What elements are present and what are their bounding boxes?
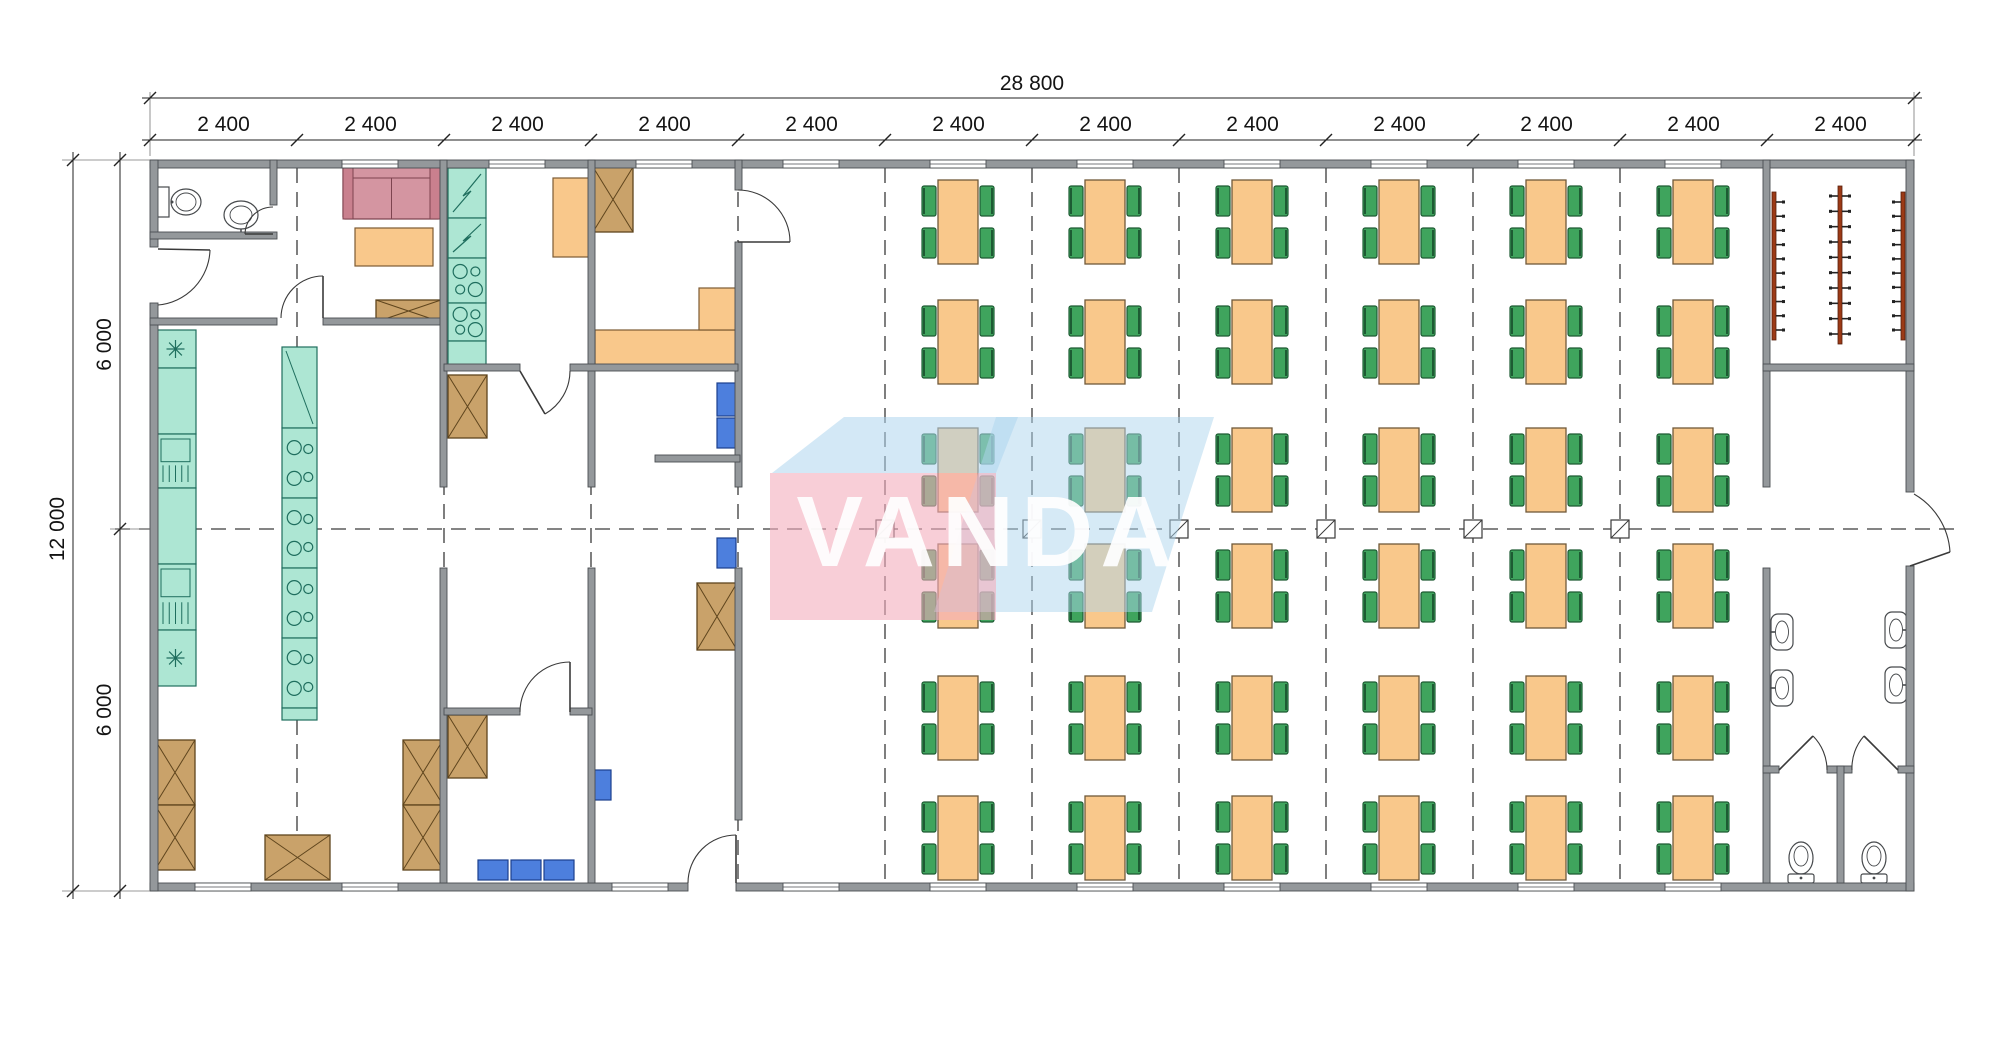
storage-crate xyxy=(155,740,195,805)
storage-crate xyxy=(448,375,487,438)
door xyxy=(520,371,570,414)
wall xyxy=(736,883,1914,891)
dining-table xyxy=(1673,796,1713,880)
chair-green xyxy=(1216,348,1230,378)
watermark-shape xyxy=(772,417,1018,473)
window xyxy=(1665,883,1721,891)
chair-green xyxy=(980,306,994,336)
dining-set xyxy=(1216,428,1288,512)
chair-green xyxy=(1568,434,1582,464)
toilet xyxy=(1861,842,1887,883)
dining-set xyxy=(1510,180,1582,264)
door xyxy=(1910,494,1950,566)
chair-green xyxy=(1657,186,1671,216)
chair-green xyxy=(1363,348,1377,378)
dimension-label: 6 000 xyxy=(93,318,116,371)
chair-green xyxy=(1657,228,1671,258)
dining-set xyxy=(1510,796,1582,880)
chair-green xyxy=(1069,724,1083,754)
dining-table xyxy=(1232,300,1272,384)
dining-set xyxy=(1069,676,1141,760)
toilet xyxy=(1788,842,1814,883)
chair-green xyxy=(1216,228,1230,258)
chair-green xyxy=(1216,682,1230,712)
chair-green xyxy=(1715,306,1729,336)
dining-set xyxy=(1069,180,1141,264)
floor-plan-page: 2 4002 4002 4002 4002 4002 4002 4002 400… xyxy=(0,0,2000,1041)
chair-green xyxy=(980,348,994,378)
chair-green xyxy=(1127,186,1141,216)
chair-green xyxy=(1510,186,1524,216)
dining-set xyxy=(1069,300,1141,384)
worktop-table xyxy=(553,178,592,257)
dimension-label: 2 400 xyxy=(1520,113,1573,136)
window xyxy=(1224,160,1280,168)
window xyxy=(1371,160,1427,168)
chair-green xyxy=(1568,802,1582,832)
dining-table xyxy=(1085,676,1125,760)
chair-green xyxy=(1421,476,1435,506)
dining-set xyxy=(1510,428,1582,512)
chair-green xyxy=(1216,592,1230,622)
chair-green xyxy=(1216,434,1230,464)
chair-green xyxy=(1216,844,1230,874)
chair-green xyxy=(1363,724,1377,754)
dimension-side-total: 12 000 xyxy=(46,497,69,561)
kitchen-counter xyxy=(448,168,486,368)
coat-rack xyxy=(1892,192,1905,340)
wall xyxy=(1763,568,1770,883)
dining-set xyxy=(1216,300,1288,384)
chair-green xyxy=(1274,682,1288,712)
chair-green xyxy=(1421,592,1435,622)
chair-green xyxy=(1568,724,1582,754)
dining-set xyxy=(1363,180,1435,264)
chair-green xyxy=(1363,186,1377,216)
door xyxy=(520,662,570,712)
chair-green xyxy=(1568,228,1582,258)
dining-set xyxy=(1657,676,1729,760)
dining-set xyxy=(1510,676,1582,760)
chair-green xyxy=(1363,682,1377,712)
sink-icon xyxy=(167,649,185,667)
dining-set xyxy=(1363,796,1435,880)
dimension-label: 6 000 xyxy=(93,684,116,737)
dining-table xyxy=(938,300,978,384)
chair-green xyxy=(1274,306,1288,336)
chair-green xyxy=(1715,682,1729,712)
storage-crate xyxy=(448,715,487,778)
chair-green xyxy=(1274,186,1288,216)
chair-green xyxy=(1715,434,1729,464)
chair-green xyxy=(1715,844,1729,874)
storage-crate xyxy=(265,835,330,880)
window xyxy=(1518,883,1574,891)
dimension-label: 2 400 xyxy=(344,113,397,136)
dining-table xyxy=(1526,676,1566,760)
dining-set xyxy=(1657,544,1729,628)
watermark: VANDA xyxy=(770,417,1214,620)
dining-table xyxy=(1085,180,1125,264)
chair-green xyxy=(1715,348,1729,378)
chair-green xyxy=(1069,186,1083,216)
chair-blue xyxy=(478,860,508,880)
dining-table xyxy=(1379,676,1419,760)
dining-table xyxy=(1085,796,1125,880)
dining-table xyxy=(1232,544,1272,628)
kitchen-counter xyxy=(282,347,317,720)
wall xyxy=(1898,766,1914,773)
chair-green xyxy=(1274,844,1288,874)
chair-green xyxy=(1657,476,1671,506)
dining-table xyxy=(1379,544,1419,628)
chair-green xyxy=(1568,476,1582,506)
dining-table xyxy=(938,796,978,880)
chair-green xyxy=(1510,348,1524,378)
chair-green xyxy=(922,724,936,754)
chair-green xyxy=(980,724,994,754)
wall xyxy=(150,303,158,891)
window xyxy=(636,160,692,168)
chair-blue xyxy=(511,860,541,880)
chair-green xyxy=(1274,228,1288,258)
chair-green xyxy=(1216,802,1230,832)
dining-set xyxy=(1363,544,1435,628)
door xyxy=(688,835,736,883)
window xyxy=(1077,160,1133,168)
chair-green xyxy=(1715,550,1729,580)
dining-set xyxy=(1216,796,1288,880)
chair-green xyxy=(1715,186,1729,216)
wash-basin xyxy=(1767,670,1793,706)
chair-green xyxy=(1363,476,1377,506)
storage-crate xyxy=(593,167,633,232)
chair-green xyxy=(1715,476,1729,506)
chair-green xyxy=(1274,476,1288,506)
chair-green xyxy=(1069,802,1083,832)
chair-green xyxy=(922,228,936,258)
window xyxy=(1371,883,1427,891)
dining-table xyxy=(1673,428,1713,512)
dining-set xyxy=(1510,300,1582,384)
chair-green xyxy=(1510,844,1524,874)
window xyxy=(195,883,251,891)
door xyxy=(738,190,790,242)
watermark-text: VANDA xyxy=(796,476,1179,588)
window xyxy=(783,883,839,891)
dining-table xyxy=(1526,300,1566,384)
chair-green xyxy=(1568,682,1582,712)
dining-table xyxy=(1673,676,1713,760)
window xyxy=(1077,883,1133,891)
dining-table xyxy=(938,676,978,760)
dining-table xyxy=(1526,544,1566,628)
wall xyxy=(1763,766,1779,773)
chair-green xyxy=(922,306,936,336)
door xyxy=(1779,736,1827,770)
chair-green xyxy=(1568,550,1582,580)
dimension-top-total: 28 800 xyxy=(1000,72,1064,95)
coat-rack xyxy=(1772,192,1785,340)
chair-green xyxy=(1421,682,1435,712)
chair-green xyxy=(980,802,994,832)
dining-table xyxy=(1673,300,1713,384)
toilet xyxy=(157,187,201,217)
chair-green xyxy=(1069,682,1083,712)
dining-set xyxy=(1216,180,1288,264)
chair-green xyxy=(1069,228,1083,258)
chair-green xyxy=(1421,802,1435,832)
chair-green xyxy=(1510,434,1524,464)
worktop-table xyxy=(355,228,433,266)
floor-plan: 2 4002 4002 4002 4002 4002 4002 4002 400… xyxy=(0,0,2000,1041)
chair-green xyxy=(1510,682,1524,712)
chair-green xyxy=(1421,550,1435,580)
chair-green xyxy=(1421,228,1435,258)
dining-table xyxy=(1379,796,1419,880)
chair-blue xyxy=(593,770,611,800)
chair-green xyxy=(980,682,994,712)
dimension-label: 2 400 xyxy=(638,113,691,136)
dining-table xyxy=(1673,544,1713,628)
chair-blue xyxy=(544,860,574,880)
dining-table xyxy=(1526,428,1566,512)
chair-green xyxy=(1363,228,1377,258)
chair-green xyxy=(1657,724,1671,754)
wall xyxy=(1763,364,1914,371)
chair-green xyxy=(1657,682,1671,712)
dining-set xyxy=(1216,676,1288,760)
storage-crate xyxy=(403,805,443,870)
dining-table xyxy=(1379,428,1419,512)
window xyxy=(342,160,398,168)
door xyxy=(1852,736,1898,770)
dining-table xyxy=(938,180,978,264)
wall xyxy=(444,364,520,371)
wall xyxy=(1763,160,1770,487)
chair-green xyxy=(980,186,994,216)
column-marker xyxy=(1317,520,1335,538)
wall xyxy=(1906,566,1914,891)
dimension-label: 2 400 xyxy=(932,113,985,136)
storage-crate xyxy=(403,740,443,805)
dining-set xyxy=(1363,428,1435,512)
storage-crate xyxy=(697,583,737,650)
chair-green xyxy=(1216,186,1230,216)
wash-basin xyxy=(224,201,258,234)
chair-green xyxy=(1363,844,1377,874)
chair-blue xyxy=(717,538,736,568)
door xyxy=(158,249,210,305)
chair-green xyxy=(922,682,936,712)
chair-green xyxy=(1510,592,1524,622)
dimension-label: 2 400 xyxy=(1667,113,1720,136)
chair-green xyxy=(1127,682,1141,712)
window xyxy=(783,160,839,168)
dining-set xyxy=(1363,676,1435,760)
dining-set xyxy=(1657,796,1729,880)
chair-green xyxy=(1510,476,1524,506)
column-marker xyxy=(1464,520,1482,538)
dining-table xyxy=(1526,796,1566,880)
chair-green xyxy=(1216,306,1230,336)
column-marker xyxy=(1611,520,1629,538)
wall xyxy=(1906,160,1914,492)
wall xyxy=(570,708,592,715)
chair-green xyxy=(1421,724,1435,754)
dining-table xyxy=(1232,676,1272,760)
dining-set xyxy=(1069,796,1141,880)
dining-table xyxy=(1232,180,1272,264)
chair-green xyxy=(1421,306,1435,336)
chair-green xyxy=(1069,844,1083,874)
chair-green xyxy=(1715,228,1729,258)
dining-set xyxy=(922,180,994,264)
storage-crate xyxy=(155,805,195,870)
wall xyxy=(570,364,738,371)
chair-green xyxy=(1657,306,1671,336)
chair-green xyxy=(1069,348,1083,378)
chair-green xyxy=(1127,724,1141,754)
chair-green xyxy=(1421,844,1435,874)
chair-green xyxy=(922,348,936,378)
chair-green xyxy=(1657,802,1671,832)
chair-green xyxy=(1657,592,1671,622)
coat-rack xyxy=(1829,186,1851,344)
chair-green xyxy=(1363,802,1377,832)
chair-green xyxy=(1715,802,1729,832)
chair-green xyxy=(922,802,936,832)
dining-table xyxy=(1526,180,1566,264)
chair-green xyxy=(1274,592,1288,622)
dimension-label: 2 400 xyxy=(1226,113,1279,136)
chair-green xyxy=(922,186,936,216)
chair-green xyxy=(1421,348,1435,378)
chair-green xyxy=(1363,306,1377,336)
window xyxy=(342,883,398,891)
wall xyxy=(150,318,277,325)
chair-green xyxy=(1715,592,1729,622)
chair-green xyxy=(1510,550,1524,580)
dimension-label: 2 400 xyxy=(1079,113,1132,136)
chair-green xyxy=(1363,550,1377,580)
sink-icon xyxy=(167,340,185,358)
chair-green xyxy=(1510,228,1524,258)
wall xyxy=(440,160,447,487)
chair-green xyxy=(1274,724,1288,754)
chair-green xyxy=(1274,434,1288,464)
window xyxy=(489,160,545,168)
dimension-label: 2 400 xyxy=(1373,113,1426,136)
sofa xyxy=(343,166,440,219)
chair-green xyxy=(1715,724,1729,754)
chair-green xyxy=(1657,844,1671,874)
chair-green xyxy=(1127,802,1141,832)
wall xyxy=(588,160,595,487)
dining-table xyxy=(1232,796,1272,880)
dining-set xyxy=(1216,544,1288,628)
dimension-label: 2 400 xyxy=(197,113,250,136)
dimension-label: 2 400 xyxy=(1814,113,1867,136)
chair-green xyxy=(1216,550,1230,580)
dining-set xyxy=(1657,428,1729,512)
chair-green xyxy=(1510,724,1524,754)
window xyxy=(930,160,986,168)
chair-blue xyxy=(717,383,736,416)
chair-green xyxy=(1657,348,1671,378)
chair-green xyxy=(1657,434,1671,464)
worktop-table xyxy=(699,288,737,330)
chair-green xyxy=(1274,348,1288,378)
dining-set xyxy=(1657,300,1729,384)
wall xyxy=(655,455,740,462)
dining-set xyxy=(922,676,994,760)
chair-green xyxy=(1510,306,1524,336)
chair-blue xyxy=(717,418,736,448)
chair-green xyxy=(1216,476,1230,506)
chair-green xyxy=(1274,802,1288,832)
chair-green xyxy=(1510,802,1524,832)
window xyxy=(930,883,986,891)
wall xyxy=(150,160,1914,168)
window xyxy=(1518,160,1574,168)
chair-green xyxy=(1274,550,1288,580)
dining-set xyxy=(1657,180,1729,264)
dining-set xyxy=(1363,300,1435,384)
chair-green xyxy=(980,228,994,258)
wall xyxy=(440,568,447,883)
chair-green xyxy=(980,844,994,874)
chair-green xyxy=(922,844,936,874)
chair-green xyxy=(1363,434,1377,464)
dining-table xyxy=(1379,180,1419,264)
chair-green xyxy=(1568,844,1582,874)
chair-green xyxy=(1127,348,1141,378)
chair-green xyxy=(1216,724,1230,754)
chair-green xyxy=(1568,592,1582,622)
wall xyxy=(588,568,595,883)
chair-green xyxy=(1568,348,1582,378)
kitchen-counter xyxy=(155,330,196,686)
window xyxy=(1665,160,1721,168)
door xyxy=(281,276,323,318)
wall xyxy=(1837,766,1844,883)
wash-basin xyxy=(1767,614,1793,650)
chair-green xyxy=(1421,434,1435,464)
chair-green xyxy=(1657,550,1671,580)
dining-table xyxy=(1379,300,1419,384)
wall xyxy=(444,708,520,715)
dimension-label: 2 400 xyxy=(785,113,838,136)
dining-set xyxy=(922,300,994,384)
wall xyxy=(150,232,277,239)
dimension-label: 2 400 xyxy=(491,113,544,136)
dining-table xyxy=(1085,300,1125,384)
window xyxy=(612,883,668,891)
worktop-table xyxy=(595,330,737,368)
dining-table xyxy=(1232,428,1272,512)
chair-green xyxy=(1127,306,1141,336)
wall xyxy=(735,160,742,190)
chair-green xyxy=(1069,306,1083,336)
wall xyxy=(323,318,444,325)
chair-green xyxy=(1568,186,1582,216)
wall xyxy=(270,160,277,205)
dining-set xyxy=(1510,544,1582,628)
chair-green xyxy=(1127,844,1141,874)
wall xyxy=(735,568,742,820)
chair-green xyxy=(1421,186,1435,216)
